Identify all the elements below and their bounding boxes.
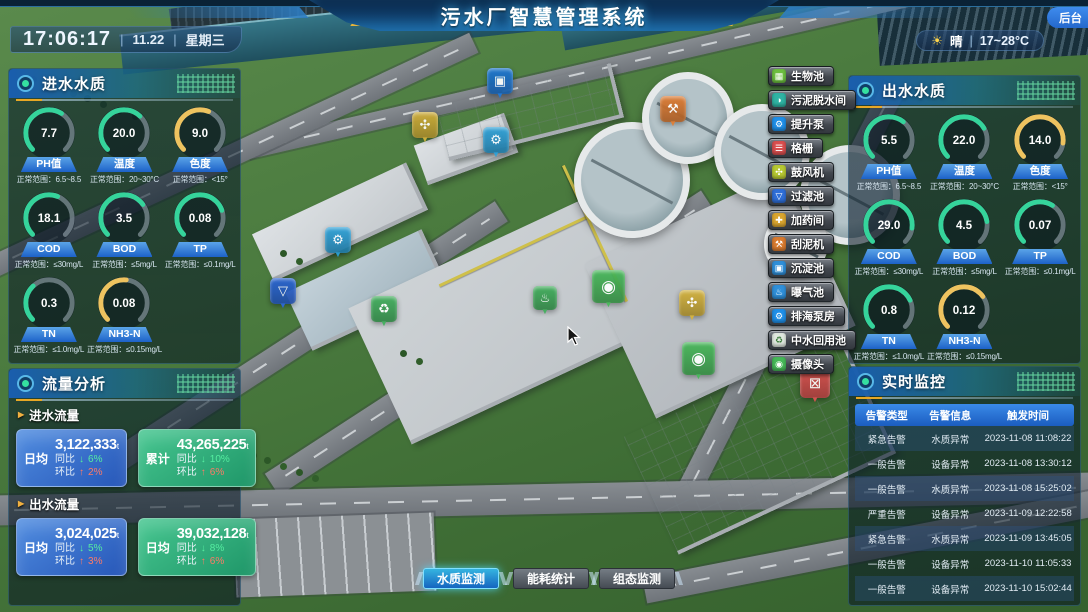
map-marker-lift-pump[interactable]: ⚙▼ xyxy=(483,127,509,153)
alarm-type: 紧急告警 xyxy=(855,432,919,446)
sedimentation-pool-icon: ▣ xyxy=(772,261,786,275)
clock-weekday: 星期三 xyxy=(186,30,225,49)
poi-label: 刮泥机 xyxy=(791,236,824,252)
sea-discharge-pump-house-icon: ⚙ xyxy=(772,309,786,323)
divider: | xyxy=(969,33,972,48)
gauge-normal-range: 正常范围：6.5~8.5 xyxy=(11,174,87,185)
weather-condition: 晴 xyxy=(950,31,963,50)
gauge-label: 温度 xyxy=(96,157,152,172)
gauge-label: NH3-N xyxy=(96,327,152,342)
gauge-dial: 3.5 xyxy=(95,189,153,247)
alarm-row[interactable]: 紧急告警水质异常2023-11-09 13:45:05 xyxy=(855,526,1074,551)
alarm-info: 水质异常 xyxy=(919,532,983,546)
flow-unit: t xyxy=(246,531,248,540)
alarm-info: 设备异常 xyxy=(919,557,983,571)
inlet-gauge-nh3n: 0.08NH3-N正常范围：≤0.15mg/L xyxy=(87,274,163,355)
alarm-info: 水质异常 xyxy=(919,482,983,496)
flow-value: 43,265,225t xyxy=(177,437,249,453)
poi-label: 过滤池 xyxy=(791,188,824,204)
gauge-value: 0.8 xyxy=(881,304,898,317)
poi-button-sedimentation-pool[interactable]: ▣沉淀池 xyxy=(768,258,834,278)
gauge-label: TN xyxy=(861,334,917,349)
alarm-row[interactable]: 严重告警设备异常2023-11-09 12:22:58 xyxy=(855,501,1074,526)
header-dots-decoration xyxy=(177,374,235,393)
weather-bar: ☀ 晴 | 17~28°C xyxy=(916,30,1044,51)
poi-label: 污泥脱水间 xyxy=(791,92,846,108)
gauge-value: 0.07 xyxy=(1029,219,1052,232)
gauge-label: TP xyxy=(1012,249,1068,264)
alarm-row[interactable]: 紧急告警水质异常2023-11-08 11:08:22 xyxy=(855,426,1074,451)
poi-button-filter-pool[interactable]: ▽过滤池 xyxy=(768,186,834,206)
outlet-gauge-cod: 29.0COD正常范围：≤30mg/L xyxy=(851,196,927,277)
poi-label: 提升泵 xyxy=(791,116,824,132)
gauge-dial: 0.07 xyxy=(1011,196,1069,254)
flow-cards-outflow: 日均3,024,025t同比↓5%环比↑3%日均39,032,128t同比↓8%… xyxy=(9,518,240,576)
gauge-normal-range: 正常范围：<15° xyxy=(162,174,238,185)
map-marker-mud-scraper[interactable]: ⚒▼ xyxy=(660,96,686,122)
flow-section-label: 出水流量 xyxy=(29,494,79,513)
alarm-type: 一般告警 xyxy=(855,482,919,496)
gauge-dial: 9.0 xyxy=(171,104,229,162)
alarm-info: 设备异常 xyxy=(919,507,983,521)
tab-energy-statistics[interactable]: 能耗统计 xyxy=(513,568,589,589)
outlet-gauge-tp: 0.07TP正常范围：≤0.1mg/L xyxy=(1002,196,1078,277)
divider: | xyxy=(173,32,176,47)
flow-card-outflow-1[interactable]: 日均3,024,025t同比↓5%环比↑3% xyxy=(16,518,127,576)
yoy-value: 5% xyxy=(88,542,102,555)
poi-label: 生物池 xyxy=(791,68,824,84)
mom-value: 3% xyxy=(88,555,102,568)
gauge-normal-range: 正常范围：≤0.15mg/L xyxy=(927,351,1003,362)
alarm-time: 2023-11-08 15:25:02 xyxy=(982,483,1074,494)
flow-stat-label: 累计 xyxy=(146,450,170,467)
flow-unit: t xyxy=(117,442,119,451)
poi-button-bio-pool[interactable]: ▦生物池 xyxy=(768,66,834,86)
gauge-dial: 20.0 xyxy=(95,104,153,162)
filter-pool-icon: ▽ xyxy=(772,189,786,203)
outlet-gauge-nh3n: 0.12NH3-N正常范围：≤0.15mg/L xyxy=(927,281,1003,362)
outlet-gauge-bod: 4.5BOD正常范围：≤5mg/L xyxy=(927,196,1003,277)
section-arrow-icon: ▶ xyxy=(18,410,24,419)
gauge-label: TP xyxy=(172,242,228,257)
flow-unit: t xyxy=(246,442,248,451)
map-marker-camera-2[interactable]: ◉▼ xyxy=(682,342,715,375)
yoy-value: 8% xyxy=(210,542,224,555)
bio-pool-icon: ▦ xyxy=(772,69,786,83)
map-marker-reuse-pool[interactable]: ♻▼ xyxy=(371,296,397,322)
gauge-label: COD xyxy=(21,242,77,257)
gauge-dial: 0.08 xyxy=(171,189,229,247)
flow-value: 3,024,025t xyxy=(55,526,119,542)
section-arrow-icon: ▶ xyxy=(18,499,24,508)
flow-card-inflow-1[interactable]: 日均3,122,333t同比↓6%环比↑2% xyxy=(16,429,127,487)
mom-value: 2% xyxy=(88,466,102,479)
alarm-type: 一般告警 xyxy=(855,457,919,471)
outlet-gauge-chroma: 14.0色度正常范围：<15° xyxy=(1002,111,1078,192)
panel-badge-icon xyxy=(857,373,874,390)
alarm-row[interactable]: 一般告警设备异常2023-11-10 11:05:33 xyxy=(855,551,1074,576)
yoy-value: 6% xyxy=(88,453,102,466)
alarm-col-header: 告警信息 xyxy=(919,408,983,423)
yoy-label: 同比 xyxy=(55,453,75,466)
blower-icon: ✣ xyxy=(772,165,786,179)
outlet-gauge-ph: 5.5PH值正常范围：6.5~8.5 xyxy=(851,111,927,192)
poi-button-sludge-dewatering[interactable]: ◑污泥脱水间 xyxy=(768,90,856,110)
marker-pointer-icon: ▼ xyxy=(605,301,613,309)
gauge-normal-range: 正常范围：≤0.15mg/L xyxy=(87,344,163,355)
mom-label: 环比 xyxy=(55,555,75,568)
inlet-gauge-bod: 3.5BOD正常范围：≤5mg/L xyxy=(87,189,163,270)
poi-label: 曝气池 xyxy=(791,284,824,300)
yoy-label: 同比 xyxy=(55,542,75,555)
gauge-value: 14.0 xyxy=(1029,134,1052,147)
poi-button-reclaimed-water-pool[interactable]: ♻中水回用池 xyxy=(768,330,856,350)
trend-down-icon: ↓ xyxy=(79,453,84,466)
poi-button-aeration-pool[interactable]: ♨曝气池 xyxy=(768,282,834,302)
header-dots-decoration xyxy=(177,74,235,93)
flow-value: 39,032,128t xyxy=(177,526,249,542)
panel-badge-icon xyxy=(857,82,874,99)
poi-button-dosing-room[interactable]: ✚加药间 xyxy=(768,210,834,230)
header-underline xyxy=(16,399,233,401)
marker-pointer-icon: ▼ xyxy=(669,120,677,128)
flow-section-label: 进水流量 xyxy=(29,405,79,424)
gauge-normal-range: 正常范围：≤5mg/L xyxy=(87,259,163,270)
tab-water-quality-monitor[interactable]: 水质监测 xyxy=(423,568,499,589)
inlet-gauge-grid: 7.7PH值正常范围：6.5~8.520.0温度正常范围：20~30°C9.0色… xyxy=(9,98,240,355)
alarm-table: 告警类型告警信息触发时间 紧急告警水质异常2023-11-08 11:08:22… xyxy=(855,404,1074,601)
alarm-info: 设备异常 xyxy=(919,582,983,596)
flow-section-title-outflow: ▶出水流量 xyxy=(18,494,240,513)
header-underline xyxy=(856,106,1073,108)
gauge-value: 22.0 xyxy=(953,134,976,147)
map-marker-camera-1[interactable]: ◉▼ xyxy=(592,270,625,303)
weather-temp-range: 17~28°C xyxy=(980,34,1029,48)
marker-pointer-icon: ▼ xyxy=(380,320,388,328)
dosing-room-icon: ✚ xyxy=(772,213,786,227)
gauge-normal-range: 正常范围：≤0.1mg/L xyxy=(162,259,238,270)
poi-button-blower[interactable]: ✣鼓风机 xyxy=(768,162,834,182)
gauge-normal-range: 正常范围：≤30mg/L xyxy=(851,266,927,277)
gauge-label: COD xyxy=(861,249,917,264)
flow-cards-inflow: 日均3,122,333t同比↓6%环比↑2%累计43,265,225t同比↓10… xyxy=(9,429,240,487)
sludge-dewatering-icon: ◑ xyxy=(772,93,786,107)
inlet-gauge-chroma: 9.0色度正常范围：<15° xyxy=(162,104,238,185)
poi-label: 中水回用池 xyxy=(791,332,846,348)
header-wing-right xyxy=(779,7,963,18)
title-plate: 污水厂智慧管理系统 xyxy=(309,0,779,31)
map-marker-lift-pump-2[interactable]: ⚙▼ xyxy=(325,227,351,253)
poi-button-sea-discharge-pump-house[interactable]: ⚙排海泵房 xyxy=(768,306,845,326)
inlet-gauge-cod: 18.1COD正常范围：≤30mg/L xyxy=(11,189,87,270)
alarm-row[interactable]: 一般告警水质异常2023-11-08 15:25:02 xyxy=(855,476,1074,501)
flow-stat-label: 日均 xyxy=(24,539,48,556)
mouse-cursor xyxy=(566,326,582,346)
alarm-type: 一般告警 xyxy=(855,557,919,571)
gauge-normal-range: 正常范围：20~30°C xyxy=(927,181,1003,192)
alarm-type: 一般告警 xyxy=(855,582,919,596)
realtime-monitor-panel: 实时监控 告警类型告警信息触发时间 紧急告警水质异常2023-11-08 11:… xyxy=(848,366,1081,606)
sun-icon: ☀ xyxy=(931,33,943,49)
gauge-label: PH值 xyxy=(21,157,77,172)
alarm-time: 2023-11-08 13:30:12 xyxy=(982,458,1074,469)
dashboard-root: ▣▼✣▼⚙▼⚒▼⚙▼▽▼♻▼♨▼◉▼✣▼◉▼⊠▼ ▦生物池◑污泥脱水间⚙提升泵☰… xyxy=(0,0,1088,612)
flow-section-title-inflow: ▶进水流量 xyxy=(18,405,240,424)
marker-pointer-icon: ▼ xyxy=(695,373,703,381)
inlet-gauge-temperature: 20.0温度正常范围：20~30°C xyxy=(87,104,163,185)
alarm-time: 2023-11-09 12:22:58 xyxy=(982,508,1074,519)
alarm-col-header: 告警类型 xyxy=(855,408,919,423)
gauge-normal-range: 正常范围：≤5mg/L xyxy=(927,266,1003,277)
map-marker-aeration[interactable]: ♨▼ xyxy=(533,286,557,310)
yoy-label: 同比 xyxy=(177,453,197,466)
poi-button-camera[interactable]: ◉摄像头 xyxy=(768,354,834,374)
gauge-value: 0.3 xyxy=(41,297,58,310)
gauge-normal-range: 正常范围：20~30°C xyxy=(87,174,163,185)
mom-label: 环比 xyxy=(177,466,197,479)
poi-button-mud-scraper[interactable]: ⚒刮泥机 xyxy=(768,234,834,254)
gauge-normal-range: 正常范围：6.5~8.5 xyxy=(851,181,927,192)
marker-pointer-icon: ▼ xyxy=(334,251,342,259)
header-underline xyxy=(16,99,233,101)
outlet-gauge-tn: 0.8TN正常范围：≤1.0mg/L xyxy=(851,281,927,362)
marker-pointer-icon: ▼ xyxy=(492,151,500,159)
alarm-col-header: 触发时间 xyxy=(982,408,1074,423)
gauge-normal-range: 正常范围：≤1.0mg/L xyxy=(851,351,927,362)
gauge-value: 20.0 xyxy=(113,127,136,140)
trend-up-icon: ↑ xyxy=(201,466,206,479)
alarm-time: 2023-11-10 11:05:33 xyxy=(982,558,1074,569)
inlet-water-quality-panel: 进水水质 7.7PH值正常范围：6.5~8.520.0温度正常范围：20~30°… xyxy=(8,68,241,364)
gauge-label: 色度 xyxy=(172,157,228,172)
poi-label: 沉淀池 xyxy=(791,260,824,276)
trend-down-icon: ↓ xyxy=(79,542,84,555)
marker-pointer-icon: ▼ xyxy=(279,302,287,310)
alarm-time: 2023-11-09 13:45:05 xyxy=(982,533,1074,544)
gauge-dial: 0.12 xyxy=(935,281,993,339)
gauge-label: BOD xyxy=(96,242,152,257)
alarm-row[interactable]: 一般告警设备异常2023-11-10 15:02:44 xyxy=(855,576,1074,601)
reclaimed-water-pool-icon: ♻ xyxy=(772,333,786,347)
yoy-value: 10% xyxy=(210,453,230,466)
map-marker-blower-2[interactable]: ✣▼ xyxy=(679,290,705,316)
poi-label: 格栅 xyxy=(791,140,813,156)
alarm-time: 2023-11-10 15:02:44 xyxy=(982,583,1074,594)
poi-label: 鼓风机 xyxy=(791,164,824,180)
panel-header: 实时监控 xyxy=(849,367,1080,396)
header-wing-left xyxy=(124,7,308,18)
panel-title: 实时监控 xyxy=(882,371,946,392)
mom-label: 环比 xyxy=(177,555,197,568)
marker-pointer-icon: ▼ xyxy=(688,314,696,322)
flow-card-inflow-2[interactable]: 累计43,265,225t同比↓10%环比↑6% xyxy=(138,429,257,487)
gauge-dial: 0.3 xyxy=(20,274,78,332)
poi-label: 排海泵房 xyxy=(791,308,835,324)
panel-badge-icon xyxy=(17,75,34,92)
flow-unit: t xyxy=(117,531,119,540)
marker-pointer-icon: ▼ xyxy=(421,136,429,144)
camera-icon: ◉ xyxy=(772,357,786,371)
gauge-value: 5.5 xyxy=(881,134,898,147)
map-marker-blower[interactable]: ✣▼ xyxy=(412,112,438,138)
gauge-label: 色度 xyxy=(1012,164,1068,179)
clock-bar: 17:06:17 | 11.22 | 星期三 xyxy=(10,26,242,53)
marker-pointer-icon: ▼ xyxy=(811,396,819,404)
flow-value: 3,122,333t xyxy=(55,437,119,453)
gauge-dial: 5.5 xyxy=(860,111,918,169)
panel-header: 出水水质 xyxy=(849,76,1080,105)
flow-stat-label: 日均 xyxy=(24,450,48,467)
marker-pointer-icon: ▼ xyxy=(496,92,504,100)
map-marker-sedimentation[interactable]: ▣▼ xyxy=(487,68,513,94)
inlet-gauge-tn: 0.3TN正常范围：≤1.0mg/L xyxy=(11,274,87,355)
gauge-normal-range: 正常范围：≤1.0mg/L xyxy=(11,344,87,355)
alarm-type: 紧急告警 xyxy=(855,532,919,546)
bar-screen-icon: ☰ xyxy=(772,141,786,155)
header-dots-decoration xyxy=(1017,81,1075,100)
alarm-info: 设备异常 xyxy=(919,457,983,471)
panel-title: 出水水质 xyxy=(882,80,946,101)
alarm-time: 2023-11-08 11:08:22 xyxy=(982,433,1074,444)
flow-analysis-panel: 流量分析 ▶进水流量日均3,122,333t同比↓6%环比↑2%累计43,265… xyxy=(8,368,241,606)
outlet-gauge-grid: 5.5PH值正常范围：6.5~8.522.0温度正常范围：20~30°C14.0… xyxy=(849,105,1080,362)
alarm-row[interactable]: 一般告警设备异常2023-11-08 13:30:12 xyxy=(855,451,1074,476)
gauge-dial: 22.0 xyxy=(935,111,993,169)
alarm-info: 水质异常 xyxy=(919,432,983,446)
gauge-label: PH值 xyxy=(861,164,917,179)
gauge-label: NH3-N xyxy=(936,334,992,349)
flow-stat-label: 日均 xyxy=(146,539,170,556)
panel-header: 流量分析 xyxy=(9,369,240,398)
lift-pump-icon: ⚙ xyxy=(772,117,786,131)
gauge-dial: 0.08 xyxy=(95,274,153,332)
aeration-pool-icon: ♨ xyxy=(772,285,786,299)
parking-lot xyxy=(234,513,437,598)
gauge-value: 4.5 xyxy=(956,219,973,232)
panel-header: 进水水质 xyxy=(9,69,240,98)
gauge-normal-range: 正常范围：≤0.1mg/L xyxy=(1002,266,1078,277)
panel-title: 流量分析 xyxy=(42,373,106,394)
trend-down-icon: ↓ xyxy=(201,453,206,466)
header-dots-decoration xyxy=(1017,372,1075,391)
gauge-label: BOD xyxy=(936,249,992,264)
poi-label: 摄像头 xyxy=(791,356,824,372)
alarm-type: 严重告警 xyxy=(855,507,919,521)
trend-down-icon: ↓ xyxy=(201,542,206,555)
flow-body: ▶进水流量日均3,122,333t同比↓6%环比↑2%累计43,265,225t… xyxy=(9,405,240,576)
outlet-water-quality-panel: 出水水质 5.5PH值正常范围：6.5~8.522.0温度正常范围：20~30°… xyxy=(848,75,1081,364)
yoy-label: 同比 xyxy=(177,542,197,555)
admin-button[interactable]: 后台 xyxy=(1047,7,1088,28)
inlet-gauge-ph: 7.7PH值正常范围：6.5~8.5 xyxy=(11,104,87,185)
inlet-gauge-tp: 0.08TP正常范围：≤0.1mg/L xyxy=(162,189,238,270)
panel-badge-icon xyxy=(17,375,34,392)
gauge-dial: 7.7 xyxy=(20,104,78,162)
gauge-dial: 29.0 xyxy=(860,196,918,254)
mom-value: 6% xyxy=(210,466,224,479)
gauge-value: 0.08 xyxy=(189,212,212,225)
tab-scada-monitor[interactable]: 组态监测 xyxy=(599,568,675,589)
gauge-dial: 0.8 xyxy=(860,281,918,339)
header-underline xyxy=(856,397,1073,399)
alarm-table-header: 告警类型告警信息触发时间 xyxy=(855,404,1074,426)
gauge-value: 9.0 xyxy=(192,127,208,140)
gauge-dial: 4.5 xyxy=(935,196,993,254)
gauge-normal-range: 正常范围：<15° xyxy=(1002,181,1078,192)
map-marker-filter[interactable]: ▽▼ xyxy=(270,278,296,304)
gauge-dial: 14.0 xyxy=(1011,111,1069,169)
flow-card-outflow-2[interactable]: 日均39,032,128t同比↓8%环比↑6% xyxy=(138,518,257,576)
mom-label: 环比 xyxy=(55,466,75,479)
mud-scraper-icon: ⚒ xyxy=(772,237,786,251)
gauge-value: 3.5 xyxy=(116,212,133,225)
gauge-value: 7.7 xyxy=(41,127,57,140)
divider: | xyxy=(120,32,123,47)
gauge-normal-range: 正常范围：≤30mg/L xyxy=(11,259,87,270)
gauge-value: 0.12 xyxy=(953,304,976,317)
marker-pointer-icon: ▼ xyxy=(541,308,549,316)
gauge-value: 29.0 xyxy=(878,219,901,232)
trend-up-icon: ↑ xyxy=(79,466,84,479)
clock-date: 11.22 xyxy=(132,32,164,47)
gauge-label: 温度 xyxy=(936,164,992,179)
gauge-dial: 18.1 xyxy=(20,189,78,247)
gauge-label: TN xyxy=(21,327,77,342)
trend-up-icon: ↑ xyxy=(201,555,206,568)
gauge-value: 0.08 xyxy=(113,297,136,310)
panel-title: 进水水质 xyxy=(42,73,106,94)
outlet-gauge-temperature: 22.0温度正常范围：20~30°C xyxy=(927,111,1003,192)
clock-time: 17:06:17 xyxy=(23,28,111,51)
poi-label: 加药间 xyxy=(791,212,824,228)
app-title: 污水厂智慧管理系统 xyxy=(441,1,648,30)
gauge-value: 18.1 xyxy=(38,212,61,225)
mom-value: 6% xyxy=(210,555,224,568)
poi-button-bar-screen[interactable]: ☰格栅 xyxy=(768,138,823,158)
poi-button-lift-pump[interactable]: ⚙提升泵 xyxy=(768,114,834,134)
trend-up-icon: ↑ xyxy=(79,555,84,568)
